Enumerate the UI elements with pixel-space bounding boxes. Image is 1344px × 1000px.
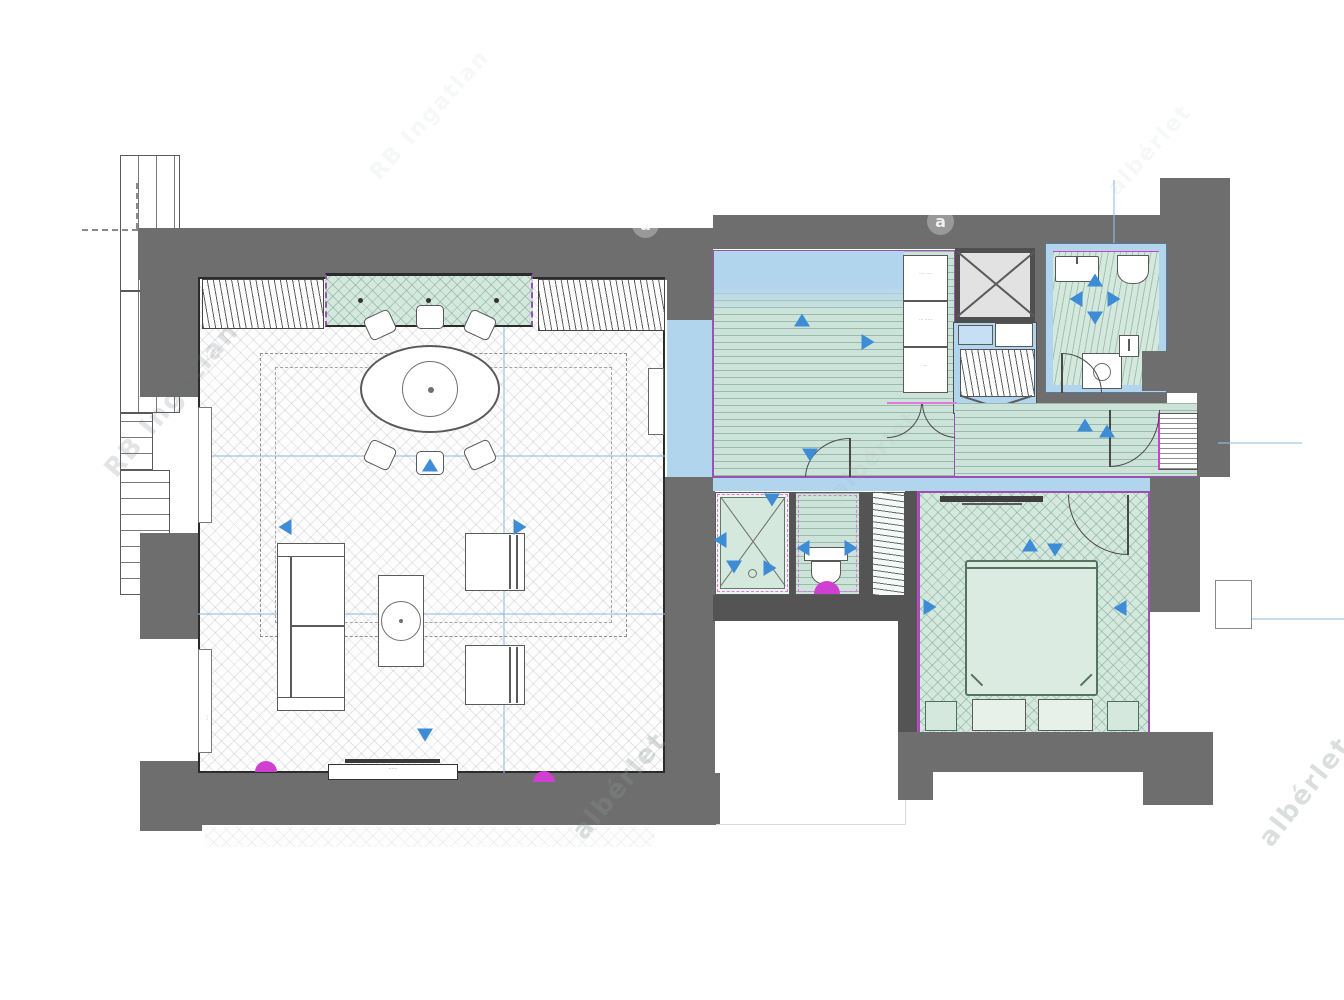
armchair-1-back	[509, 535, 511, 589]
wall-shower-wc-bottom	[713, 595, 905, 621]
direction-arrow-right	[514, 519, 527, 535]
cabinet-label-1: ···· ····	[905, 273, 946, 278]
bedroom-tv	[940, 496, 1043, 502]
bed	[965, 560, 1098, 696]
direction-arrow-left	[714, 532, 727, 548]
cabinet-label-3: ···	[905, 365, 946, 370]
direction-arrow-right	[862, 334, 875, 350]
bedroom-left-lower-wall	[898, 620, 912, 734]
direction-arrow-left	[1114, 600, 1127, 616]
small-hall-radiator	[1158, 413, 1198, 470]
bedroom-corner-bottom-left	[898, 732, 933, 800]
armchair-2-back	[509, 647, 511, 703]
direction-arrow-up	[422, 459, 438, 472]
bedroom-corner-bottom-right	[1143, 732, 1213, 805]
wall-left-bottom-corner	[140, 761, 202, 831]
sofa	[277, 543, 345, 711]
wall-left-mid	[140, 533, 198, 639]
direction-arrow-down	[726, 561, 742, 574]
tv-screen	[345, 759, 440, 763]
sofa-seat-line	[292, 625, 344, 627]
direction-arrow-down	[417, 729, 433, 742]
window-sill-1	[198, 407, 212, 523]
nightstand-left	[925, 701, 957, 731]
direction-arrow-left	[797, 540, 810, 556]
bathroom-sink-tap	[1076, 256, 1078, 264]
direction-arrow-right	[764, 560, 777, 576]
bed-bench-right	[1038, 699, 1093, 731]
sofa-back-line	[290, 545, 292, 709]
entry-closet-hanging	[960, 349, 1035, 397]
window-right-small-hall	[120, 413, 153, 470]
direction-arrow-up	[1077, 419, 1093, 432]
tv-console-label: ······	[370, 768, 416, 773]
direction-arrow-right	[845, 540, 858, 556]
living-hall-door	[648, 368, 664, 435]
closet-dot-3	[494, 298, 499, 303]
bed-headboard	[967, 567, 1096, 569]
direction-arrow-up	[1022, 539, 1038, 552]
entry-closet-shelf-left	[958, 325, 993, 345]
entry-closet-shelf-right	[995, 323, 1033, 347]
hall-lightblue-zone	[714, 251, 904, 312]
bedroom-tv-stand	[962, 503, 1022, 505]
dining-chair-2	[416, 305, 444, 329]
direction-arrow-up	[1087, 274, 1103, 287]
bedroom-door-leaf	[1127, 495, 1129, 555]
bathroom-fixture-glyph	[1128, 339, 1130, 351]
property-line-vertical	[136, 183, 138, 229]
direction-arrow-left	[279, 519, 292, 535]
guide-line-horizontal-2	[198, 613, 665, 615]
closet-hatched-right	[538, 279, 665, 331]
direction-arrow-down	[764, 494, 780, 507]
armchair-2-back2	[516, 647, 518, 703]
wall-left-upper	[140, 277, 198, 397]
kitchen-cabinet-1	[903, 255, 948, 301]
entry-strip	[667, 320, 713, 477]
ground-hatch-below-wall	[205, 827, 655, 847]
direction-arrow-up	[1099, 425, 1115, 438]
direction-arrow-down	[1087, 312, 1103, 325]
closet-dot-2	[426, 298, 431, 303]
wall-bathroom-right-fill	[1165, 243, 1200, 393]
double-door-frame	[887, 402, 957, 404]
bed-bench-left	[972, 699, 1026, 731]
bathroom-notch-wall	[1142, 351, 1167, 391]
closet-dot-1	[358, 298, 363, 303]
bathroom-door-leaf	[1061, 353, 1063, 393]
direction-arrow-right	[924, 599, 937, 615]
courtyard-outline	[716, 621, 906, 825]
kitchen-cabinet-3	[903, 347, 948, 393]
armchair-1-back2	[516, 535, 518, 589]
wall-note-top: ····	[202, 355, 207, 361]
nightstand-right	[1107, 701, 1139, 731]
window-sill-2	[198, 649, 212, 753]
wall-bottom-living	[200, 773, 720, 825]
bathroom-toilet	[1117, 255, 1149, 284]
property-line-horizontal	[82, 229, 138, 231]
bedroom-bottom-wall	[905, 732, 1150, 772]
cabinet-label-2: ··· ·····	[905, 319, 946, 324]
hall-door-leaf	[849, 438, 851, 478]
guide-line-top-right	[1113, 180, 1115, 246]
direction-arrow-down	[1047, 544, 1063, 557]
sofa-armrest-bottom	[277, 697, 345, 711]
bedroom-right-wall-upper	[1150, 477, 1200, 612]
watermark-text: albérlet	[1253, 731, 1344, 852]
direction-arrow-right	[1108, 291, 1121, 307]
shower-drain	[748, 569, 757, 578]
wall-living-right-lower	[665, 477, 715, 825]
external-unit	[1215, 580, 1252, 629]
wc-toilet-tank	[804, 547, 848, 561]
wall-wc-wardrobe	[860, 492, 872, 595]
direction-arrow-left	[1070, 291, 1083, 307]
corridor-bottom-wall	[713, 477, 1197, 491]
wardrobe-closet	[872, 492, 905, 608]
wall-corner-top-right	[1160, 178, 1230, 248]
guide-line-right-1	[1218, 442, 1302, 444]
direction-arrow-down	[802, 449, 818, 462]
coffee-table-center	[399, 619, 403, 623]
kitchen-cabinet-2	[903, 301, 948, 347]
floor-plan: ···· ···· ······ ···· ···· ··· ····· ···	[120, 155, 1235, 855]
wall-note-bottom: ····	[202, 715, 207, 721]
wall-entry-top-block	[667, 249, 713, 320]
sofa-armrest-top	[277, 543, 345, 557]
small-hall-door-leaf	[1109, 410, 1111, 467]
dining-table-center	[428, 387, 434, 393]
direction-arrow-up	[794, 314, 810, 327]
closet-hatched-left	[202, 279, 324, 329]
